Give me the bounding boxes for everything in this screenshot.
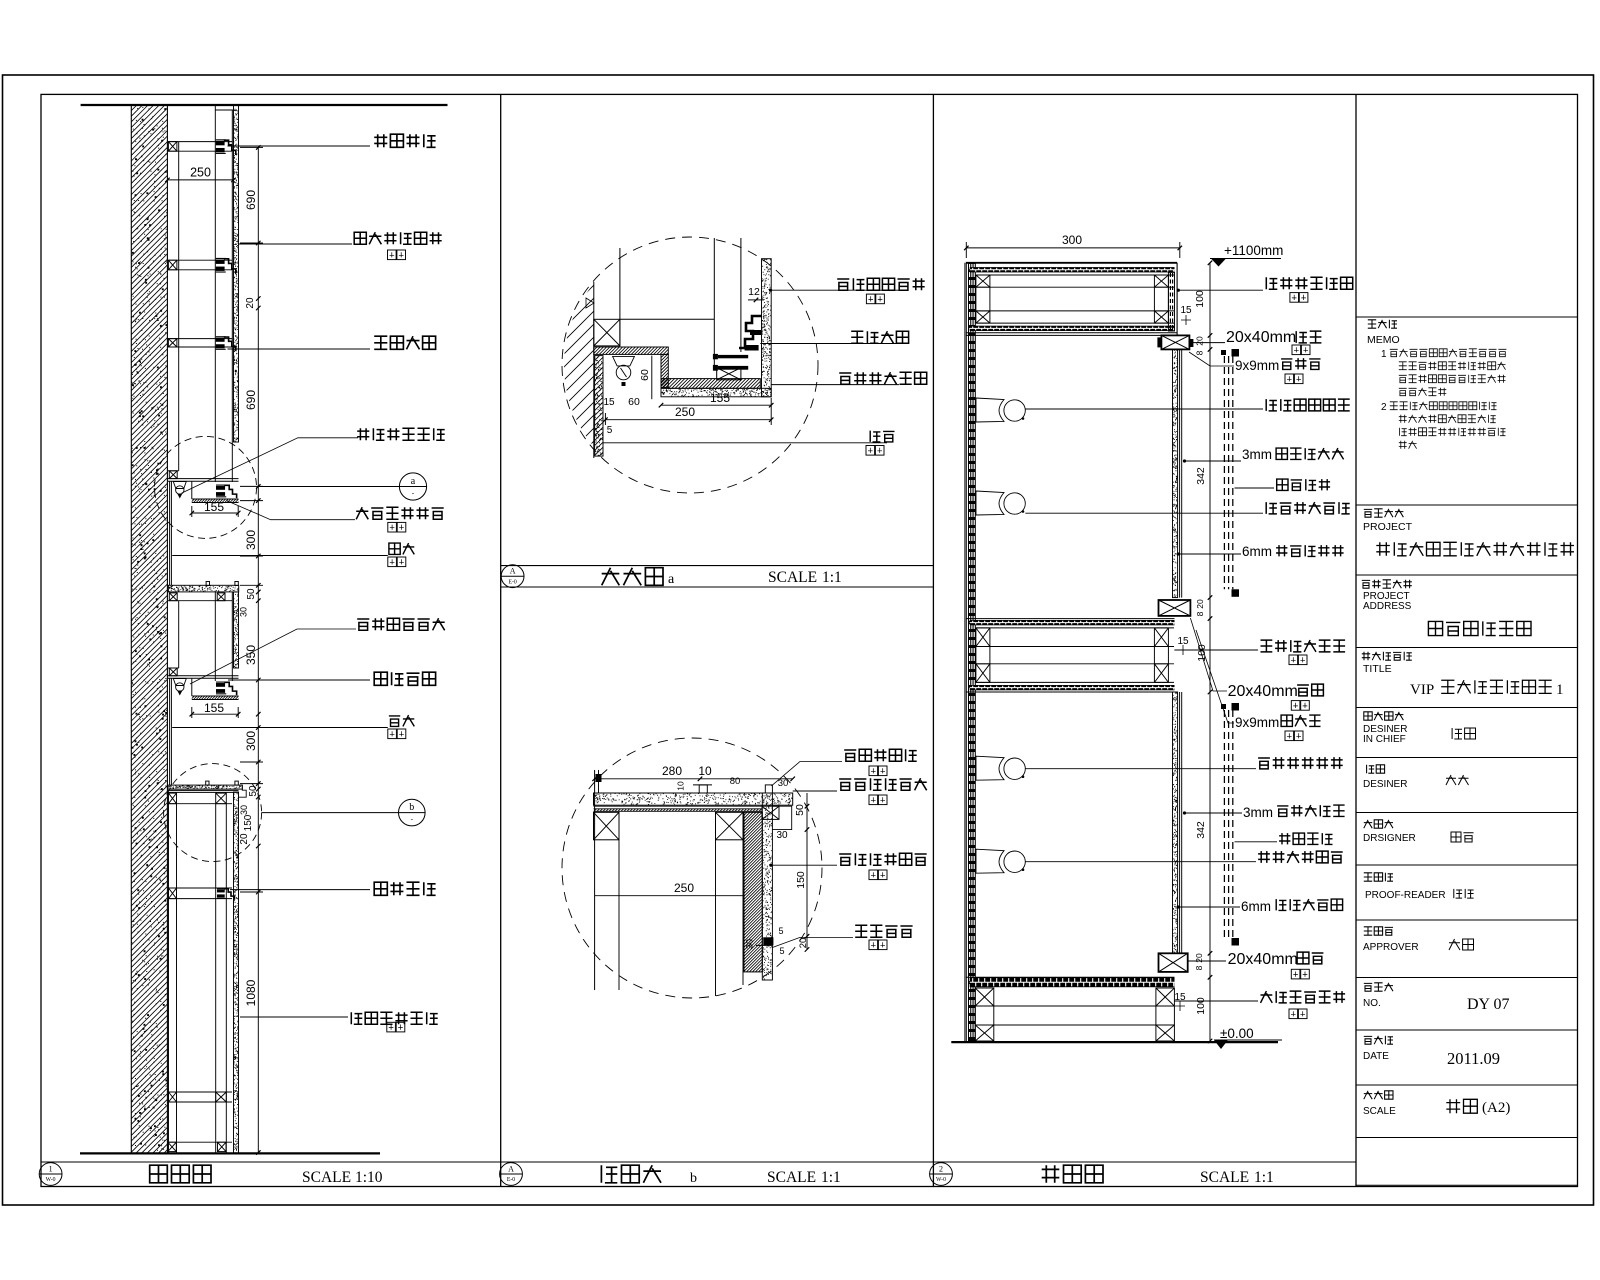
svg-text:30: 30 (239, 805, 249, 815)
svg-text:12: 12 (748, 286, 760, 298)
svg-text:30: 30 (776, 830, 788, 841)
svg-text:b: b (409, 802, 414, 813)
svg-text:20x40mm: 20x40mm (1228, 951, 1298, 968)
svg-text:342: 342 (1195, 467, 1207, 485)
svg-text:50: 50 (248, 785, 259, 797)
svg-text:8: 8 (1194, 965, 1204, 970)
svg-text:DRSIGNER: DRSIGNER (1363, 833, 1416, 844)
svg-text:6mm: 6mm (1241, 899, 1271, 914)
svg-text:SCALE: SCALE (1363, 1106, 1396, 1117)
svg-text:SCALE: SCALE (767, 1169, 816, 1186)
svg-text:IN CHIEF: IN CHIEF (1363, 734, 1406, 745)
svg-text:6mm: 6mm (1242, 544, 1272, 559)
svg-text:100: 100 (1194, 290, 1206, 308)
svg-text:20: 20 (239, 833, 250, 845)
svg-text:10: 10 (698, 764, 712, 778)
svg-text:9x9mm: 9x9mm (1235, 358, 1279, 373)
svg-text:300: 300 (244, 731, 258, 751)
svg-text:300: 300 (244, 530, 258, 550)
svg-text:3mm: 3mm (1243, 805, 1273, 820)
svg-text:a: a (668, 572, 675, 587)
svg-text:PROJECT: PROJECT (1363, 521, 1413, 533)
svg-text:9x9mm: 9x9mm (1235, 715, 1279, 730)
svg-text:8: 8 (1195, 611, 1205, 616)
svg-text:150: 150 (795, 871, 807, 889)
svg-text:W-0: W-0 (46, 1177, 56, 1183)
svg-text:E-0: E-0 (507, 1177, 515, 1183)
svg-text:DATE: DATE (1363, 1051, 1389, 1062)
svg-text:50: 50 (246, 588, 257, 600)
svg-text:1:1: 1:1 (821, 1169, 841, 1186)
svg-text:MEMO: MEMO (1367, 334, 1400, 346)
svg-text:2: 2 (939, 1165, 943, 1174)
svg-text:20: 20 (798, 938, 809, 949)
svg-text:1: 1 (1381, 349, 1387, 360)
svg-text:ADDRESS: ADDRESS (1363, 601, 1412, 612)
svg-text:60: 60 (639, 369, 651, 381)
svg-text:5: 5 (607, 425, 613, 436)
svg-text:250: 250 (674, 881, 694, 895)
svg-text:155: 155 (204, 701, 224, 715)
svg-text:SCALE: SCALE (1200, 1169, 1249, 1186)
svg-text:80: 80 (730, 776, 741, 787)
svg-text:1:10: 1:10 (355, 1169, 383, 1186)
svg-text:20: 20 (1195, 599, 1205, 609)
svg-text:NO.: NO. (1363, 998, 1381, 1009)
svg-text:VIP: VIP (1410, 682, 1434, 698)
svg-text:+1100mm: +1100mm (1224, 243, 1283, 258)
svg-text:30: 30 (744, 939, 754, 949)
svg-text:155: 155 (710, 391, 730, 405)
svg-text:1: 1 (1556, 682, 1564, 698)
svg-text:30: 30 (238, 607, 248, 617)
svg-text:342: 342 (1195, 821, 1207, 839)
svg-text:20x40mm: 20x40mm (1226, 329, 1296, 346)
svg-text:60: 60 (628, 396, 640, 408)
svg-text:8: 8 (1194, 350, 1204, 355)
svg-text:TITLE: TITLE (1363, 663, 1392, 675)
svg-text:E-0: E-0 (508, 579, 516, 585)
svg-text:10: 10 (675, 781, 685, 791)
svg-text:250: 250 (675, 405, 695, 419)
svg-text:50: 50 (794, 804, 806, 816)
svg-text:15: 15 (1180, 305, 1192, 316)
svg-text:A: A (510, 567, 516, 576)
svg-text:5: 5 (779, 946, 784, 956)
svg-text:±0.00: ±0.00 (1220, 1026, 1254, 1041)
svg-text:DY 07: DY 07 (1467, 996, 1510, 1013)
svg-text:(A2): (A2) (1482, 1100, 1510, 1116)
svg-text:150: 150 (243, 814, 254, 831)
svg-text:690: 690 (244, 390, 258, 410)
svg-text:1:1: 1:1 (1254, 1169, 1274, 1186)
svg-text:2: 2 (1381, 402, 1387, 413)
svg-text:20x40mm: 20x40mm (1228, 683, 1298, 700)
svg-text:15: 15 (603, 397, 615, 408)
svg-text:SCALE: SCALE (768, 569, 817, 586)
svg-text:250: 250 (190, 166, 211, 180)
svg-text:1:1: 1:1 (822, 569, 842, 586)
svg-text:PROOF-READER: PROOF-READER (1365, 890, 1446, 901)
svg-text:2011.09: 2011.09 (1447, 1049, 1500, 1068)
svg-text:100: 100 (1195, 997, 1207, 1015)
svg-text:155: 155 (204, 500, 224, 514)
svg-text:W-0: W-0 (936, 1177, 946, 1183)
svg-text:b: b (690, 1171, 697, 1186)
svg-text:APPROVER: APPROVER (1363, 942, 1419, 953)
svg-text:20: 20 (245, 297, 256, 309)
svg-text:1: 1 (49, 1165, 53, 1174)
svg-text:300: 300 (1062, 233, 1082, 247)
svg-text:SCALE: SCALE (302, 1169, 351, 1186)
svg-text:1080: 1080 (244, 979, 258, 1006)
svg-text:3mm: 3mm (1242, 447, 1272, 462)
svg-text:690: 690 (244, 190, 258, 210)
svg-text:5: 5 (778, 926, 783, 936)
svg-text:A: A (508, 1165, 514, 1174)
svg-text:20: 20 (1194, 336, 1204, 346)
svg-text:DESINER: DESINER (1363, 779, 1407, 790)
svg-text:280: 280 (662, 764, 682, 778)
svg-text:a: a (411, 476, 416, 487)
